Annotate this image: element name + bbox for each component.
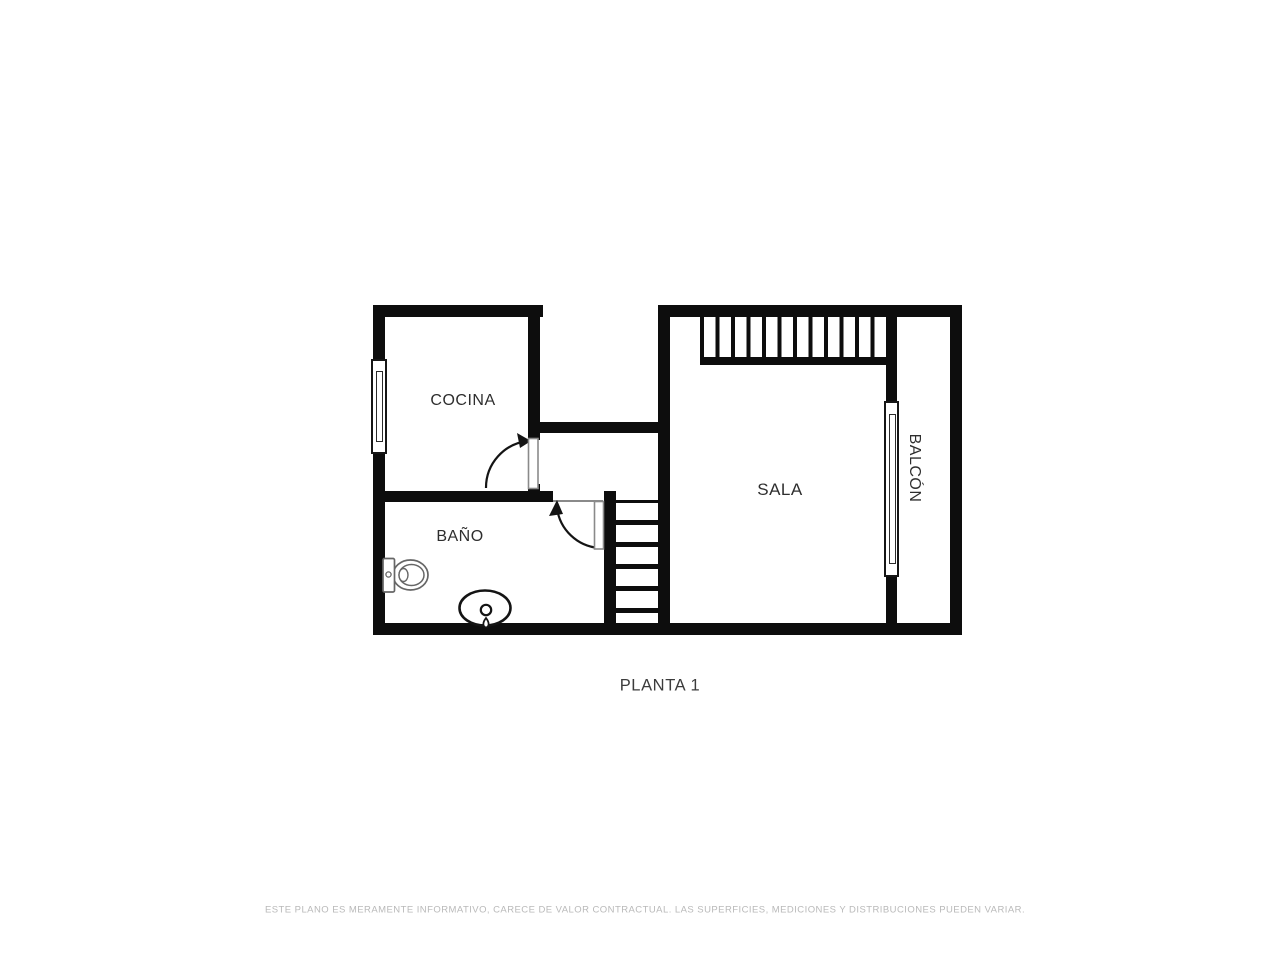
cocina-door-icon	[480, 428, 544, 492]
wall-corridor-top	[534, 422, 670, 433]
window-cocina-glass	[376, 371, 383, 442]
room-label-balcon: BALCÓN	[905, 434, 923, 503]
room-label-cocina: COCINA	[430, 392, 495, 410]
room-label-sala: SALA	[757, 480, 802, 500]
wall-top-left-block	[373, 305, 543, 317]
wall-balcony-divider-upper	[886, 305, 897, 402]
stairs-upper	[700, 317, 886, 357]
floorplan-canvas: COCINA BAÑO SALA BALCÓN PLANTA 1 ESTE PL…	[0, 0, 1280, 960]
stairs-upper-edge	[700, 357, 887, 365]
sink-icon	[456, 587, 514, 631]
window-balcony-glass	[889, 414, 896, 564]
wall-top-right-block	[658, 305, 962, 317]
bano-door-icon	[546, 494, 608, 556]
wall-bano-top	[373, 491, 553, 502]
wall-outer-right	[950, 305, 962, 635]
stairs-lower	[616, 503, 658, 623]
room-label-bano: BAÑO	[436, 528, 483, 546]
disclaimer-text: ESTE PLANO ES MERAMENTE INFORMATIVO, CAR…	[265, 905, 1025, 916]
plan-title: PLANTA 1	[620, 677, 701, 696]
wall-sala-left	[658, 305, 670, 635]
wall-cocina-right-upper	[528, 305, 540, 440]
toilet-icon	[378, 553, 434, 599]
